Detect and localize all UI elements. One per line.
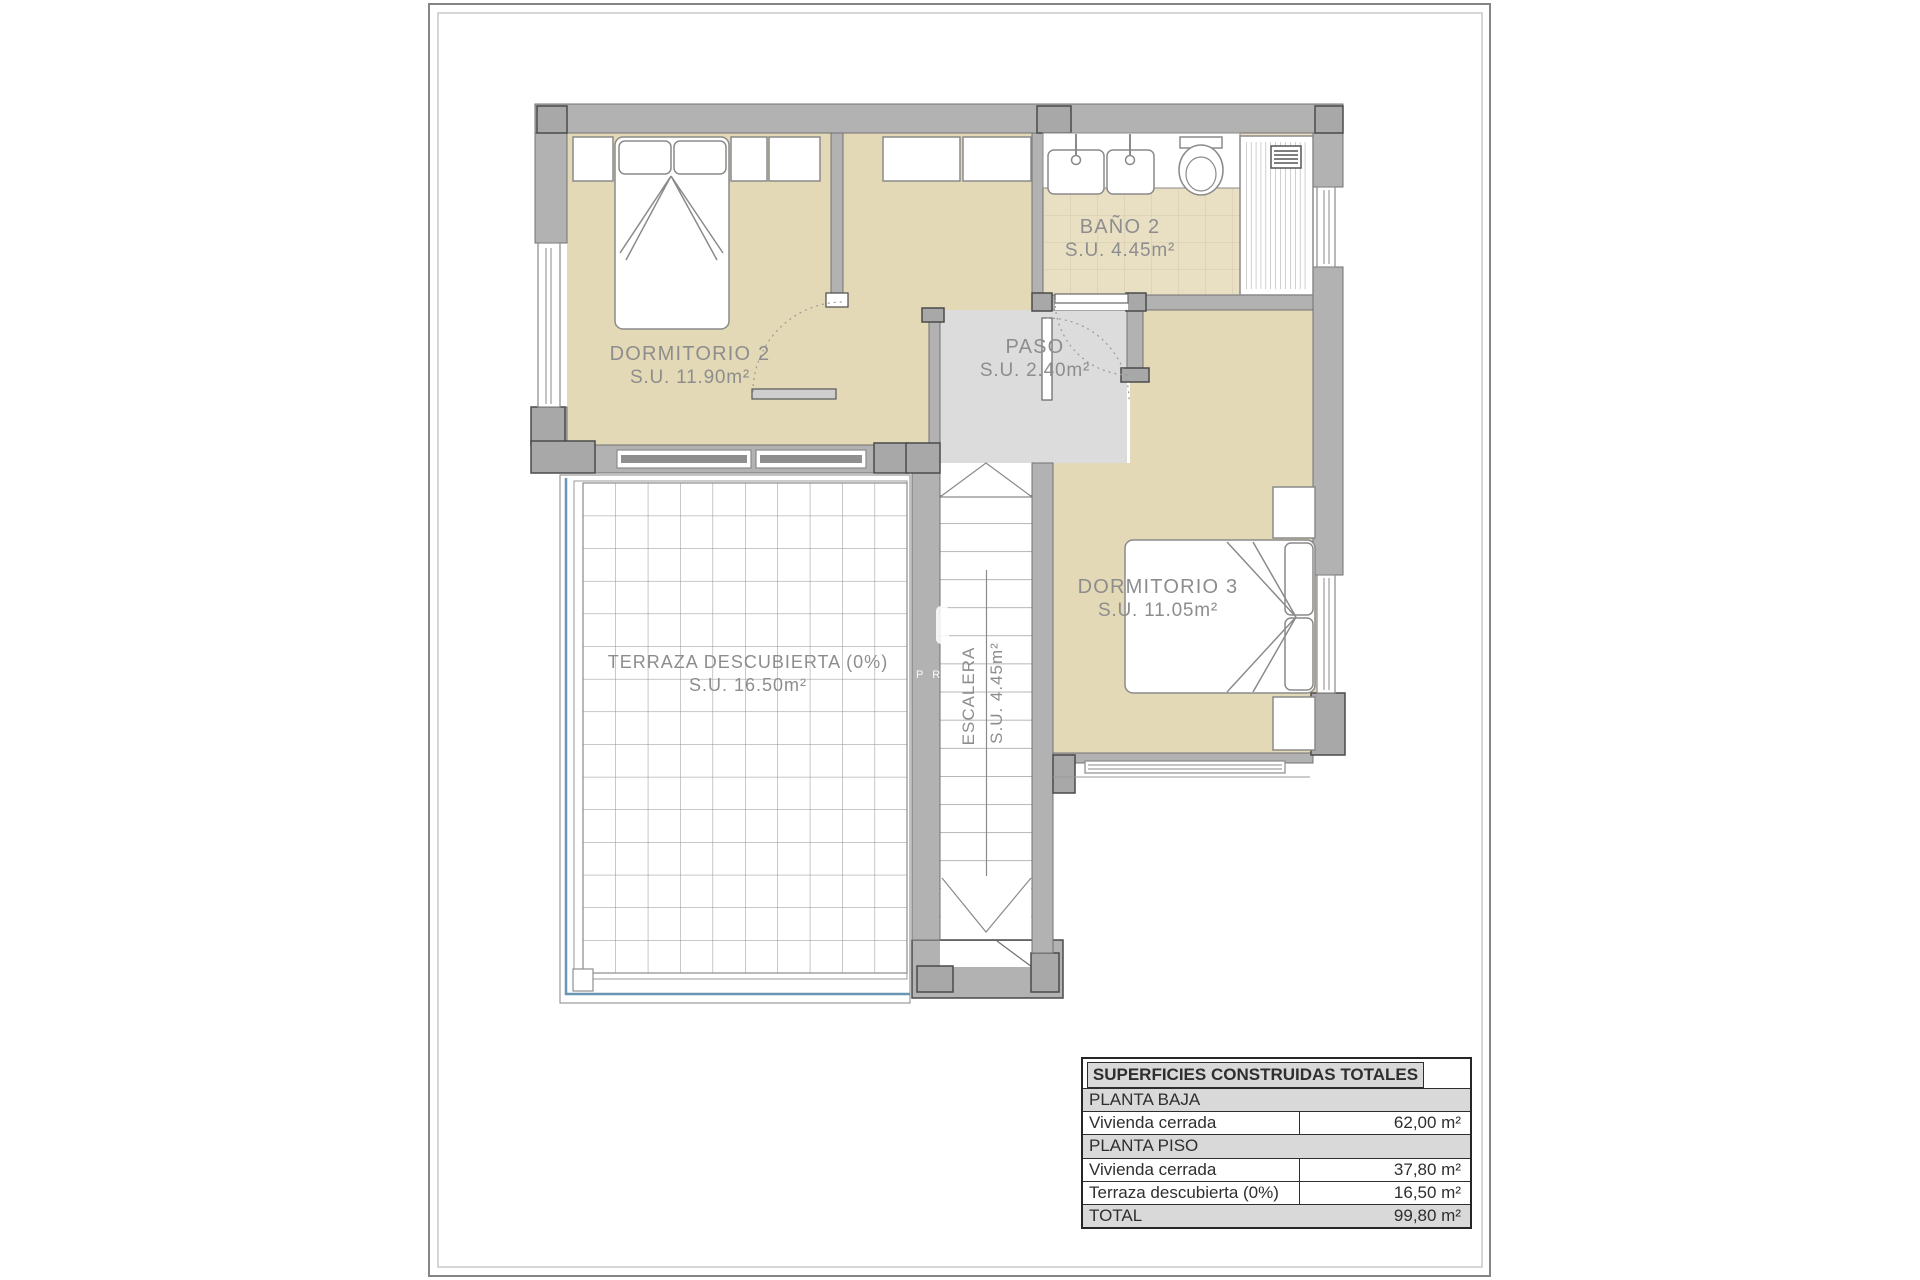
row-label: TOTAL xyxy=(1083,1205,1299,1227)
table-row-vivienda-baja: Vivienda cerrada 62,00 m² xyxy=(1083,1111,1470,1134)
terraza-label: TERRAZA DESCUBIERTA (0%) xyxy=(608,652,888,672)
terrace: TERRAZA DESCUBIERTA (0%) S.U. 16.50m² xyxy=(560,475,910,1003)
paso-label: PASO xyxy=(1006,336,1065,358)
areas-table: SUPERFICIES CONSTRUIDAS TOTALES PLANTA B… xyxy=(1081,1057,1472,1229)
table-row-planta-piso: PLANTA PISO xyxy=(1083,1134,1470,1157)
nightstand xyxy=(1273,487,1315,538)
bano2-label: BAÑO 2 xyxy=(1080,214,1161,238)
row-label: Vivienda cerrada xyxy=(1083,1112,1299,1134)
row-value: 37,80 m² xyxy=(1299,1159,1470,1181)
nightstand xyxy=(1273,697,1315,750)
window-dorm3-bottom xyxy=(1085,761,1285,773)
paso-area: S.U. 2.40m² xyxy=(980,360,1090,381)
door-leaf-bano2 xyxy=(1055,294,1128,303)
row-value: 99,80 m² xyxy=(1299,1205,1470,1227)
nightstand xyxy=(573,137,613,181)
bano2-area: S.U. 4.45m² xyxy=(1065,240,1175,261)
nightstand xyxy=(731,137,767,181)
watermark-text: P R xyxy=(916,669,943,681)
floor-plan: TERRAZA DESCUBIERTA (0%) S.U. 16.50m² ES… xyxy=(0,0,1920,1280)
door-leaf-dorm3 xyxy=(1042,318,1052,400)
dormitorio2-label: DORMITORIO 2 xyxy=(610,343,771,365)
terrace-tile-grid xyxy=(583,483,907,973)
dormitorio2-area: S.U. 11.90m² xyxy=(630,367,750,388)
dormitorio3-label: DORMITORIO 3 xyxy=(1078,576,1239,598)
table-row-total: TOTAL 99,80 m² xyxy=(1083,1204,1470,1227)
page: { "colors": { "room_fill": "#e4d9b6", "b… xyxy=(0,0,1920,1280)
window-dorm3-right xyxy=(1317,575,1335,693)
row-label: PLANTA BAJA xyxy=(1083,1089,1299,1111)
escalera-area: S.U. 4.45m² xyxy=(987,642,1006,744)
window-dorm2-left xyxy=(538,243,560,407)
wardrobe xyxy=(769,137,820,181)
table-row-vivienda-piso: Vivienda cerrada 37,80 m² xyxy=(1083,1158,1470,1181)
shower-drain xyxy=(1271,146,1301,168)
table-title: SUPERFICIES CONSTRUIDAS TOTALES xyxy=(1087,1062,1424,1088)
terrace-drain-box xyxy=(573,969,593,991)
escalera-label: ESCALERA xyxy=(959,647,978,746)
row-value: 62,00 m² xyxy=(1299,1112,1470,1134)
terraza-area: S.U. 16.50m² xyxy=(689,675,807,695)
pillow xyxy=(674,141,726,174)
dormitorio3-area: S.U. 11.05m² xyxy=(1098,600,1218,621)
row-value: 16,50 m² xyxy=(1299,1182,1470,1204)
table-header-row: SUPERFICIES CONSTRUIDAS TOTALES xyxy=(1083,1059,1470,1088)
row-label: Vivienda cerrada xyxy=(1083,1159,1299,1181)
table-row-planta-baja: PLANTA BAJA xyxy=(1083,1088,1470,1111)
door-leaf-dorm2 xyxy=(752,389,836,399)
wardrobe xyxy=(883,137,960,181)
window-bano2-right xyxy=(1317,187,1335,267)
pillow xyxy=(619,141,671,174)
row-label: Terraza descubierta (0%) xyxy=(1083,1182,1299,1204)
table-row-terraza: Terraza descubierta (0%) 16,50 m² xyxy=(1083,1181,1470,1204)
paso-floor xyxy=(940,310,1127,463)
wardrobe xyxy=(963,137,1031,181)
row-label: PLANTA PISO xyxy=(1083,1135,1299,1157)
